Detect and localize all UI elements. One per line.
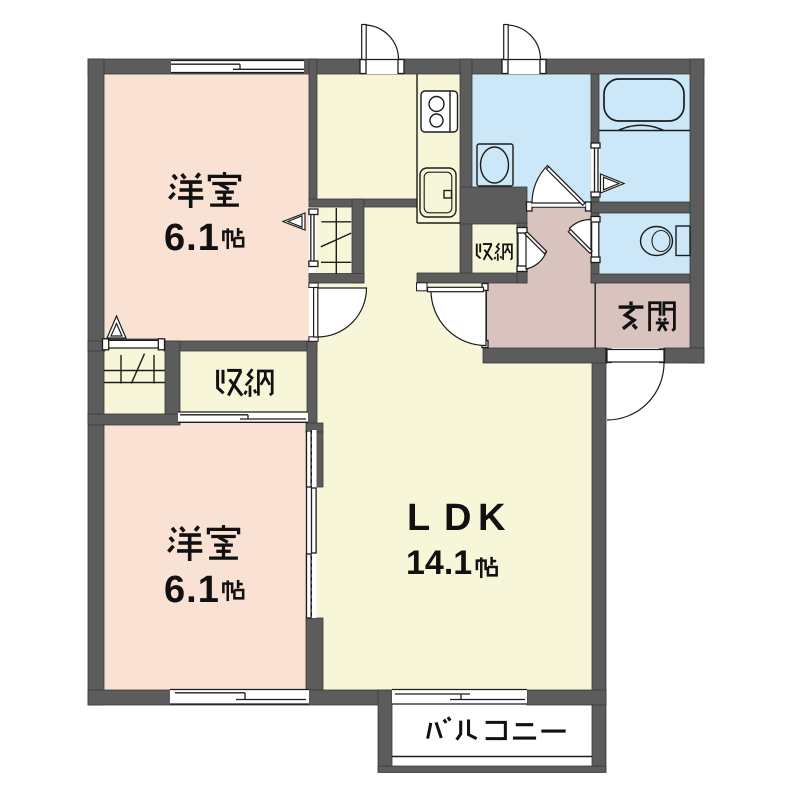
svg-text:6.1: 6.1 xyxy=(164,217,220,259)
svg-text:6.1: 6.1 xyxy=(164,569,220,611)
svg-text:K: K xyxy=(478,497,506,539)
svg-text:D: D xyxy=(444,497,471,539)
svg-text:14.1: 14.1 xyxy=(406,544,472,582)
svg-text:L: L xyxy=(407,497,430,539)
